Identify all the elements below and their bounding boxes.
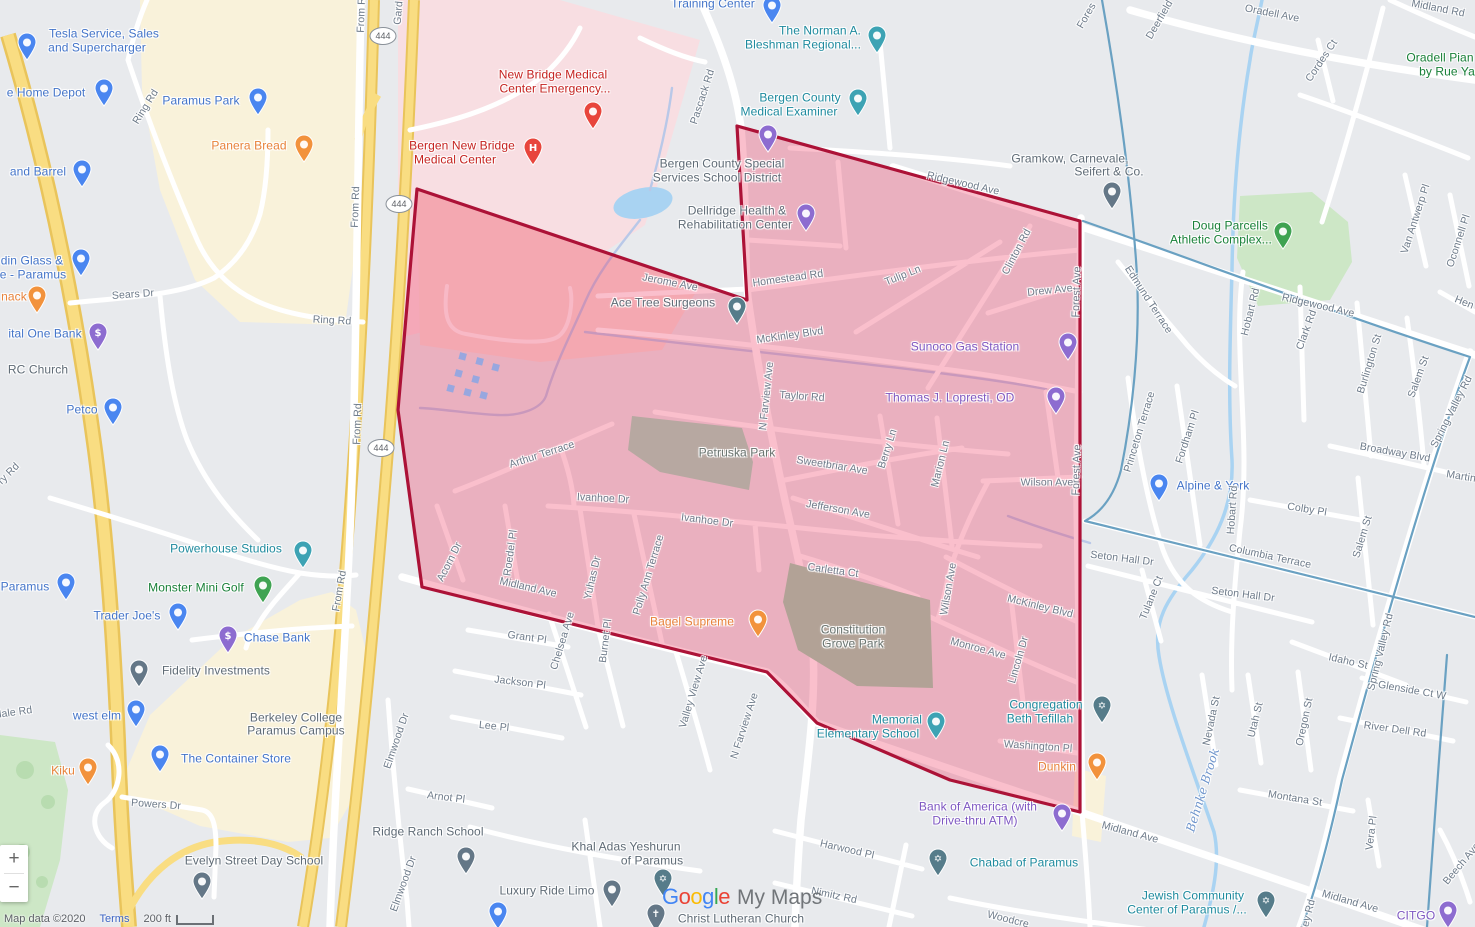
zoom-control[interactable]: + − — [0, 845, 28, 902]
map-data-text: Map data ©2020 — [4, 913, 86, 925]
map-canvas[interactable]: Tesla Service, Salesand Superchargere Ho… — [0, 0, 1475, 927]
scale-text: 200 ft — [143, 913, 171, 925]
google-my-maps-watermark: Google My Maps — [662, 884, 822, 910]
park-area-doug-parcells — [1237, 192, 1352, 306]
tree — [41, 795, 55, 809]
zoom-out-button[interactable]: − — [0, 874, 28, 902]
tree — [36, 876, 48, 888]
watermark-suffix: My Maps — [737, 886, 822, 910]
base-map — [0, 0, 1475, 927]
google-logo: Google — [662, 884, 730, 910]
tree — [16, 761, 34, 779]
mall-area-paramus-park — [140, 0, 365, 325]
attribution-bar: Map data ©2020 Terms 200 ft — [4, 913, 214, 925]
zoom-in-button[interactable]: + — [0, 845, 28, 873]
scale-bar — [176, 915, 214, 925]
terms-link[interactable]: Terms — [100, 913, 130, 925]
scale-indicator: 200 ft — [143, 913, 214, 925]
